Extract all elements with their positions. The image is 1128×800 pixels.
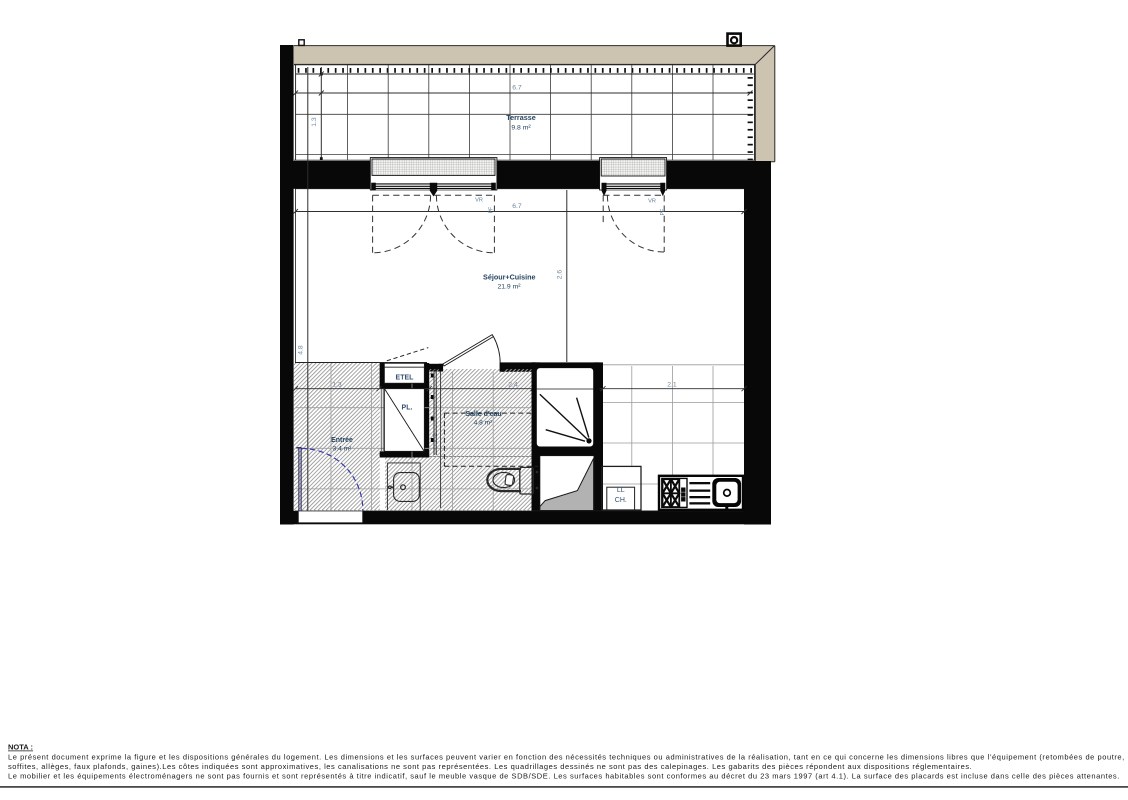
svg-text:Entrée: Entrée — [331, 437, 353, 444]
svg-text:CH.: CH. — [615, 497, 627, 504]
svg-text:NOTA :: NOTA : — [8, 743, 33, 752]
svg-text:ETEL: ETEL — [396, 375, 415, 382]
svg-text:2.6: 2.6 — [557, 270, 564, 280]
svg-text:soffites, allèges, faux plafon: soffites, allèges, faux plafonds, gaines… — [8, 762, 972, 771]
svg-text:1.3: 1.3 — [311, 117, 318, 127]
svg-text:Terrasse: Terrasse — [506, 113, 535, 122]
svg-text:2.1: 2.1 — [667, 381, 677, 388]
svg-text:2.4: 2.4 — [508, 381, 518, 388]
svg-text:Salle d'eau: Salle d'eau — [465, 411, 501, 418]
svg-text:6.7: 6.7 — [512, 85, 522, 92]
svg-text:PF: PF — [660, 209, 666, 215]
svg-text:LL: LL — [617, 487, 625, 494]
svg-text:9.8 m²: 9.8 m² — [511, 125, 531, 132]
svg-text:1.3: 1.3 — [332, 381, 342, 388]
svg-text:PL.: PL. — [402, 405, 413, 412]
svg-text:Le mobilier et les équipements: Le mobilier et les équipements électromé… — [8, 772, 1120, 781]
svg-text:VR: VR — [648, 199, 656, 205]
svg-text:VR: VR — [475, 197, 483, 203]
svg-text:PF: PF — [489, 207, 495, 213]
svg-text:4.8: 4.8 — [298, 345, 305, 355]
svg-text:3.4 m²: 3.4 m² — [333, 446, 352, 453]
svg-text:4.8 m²: 4.8 m² — [474, 420, 493, 427]
svg-text:6.7: 6.7 — [512, 203, 522, 210]
svg-text:Séjour+Cuisine: Séjour+Cuisine — [483, 273, 536, 282]
svg-text:21.9 m²: 21.9 m² — [497, 284, 521, 291]
svg-text:Le présent document exprime la: Le présent document exprime la figure et… — [8, 752, 1125, 761]
